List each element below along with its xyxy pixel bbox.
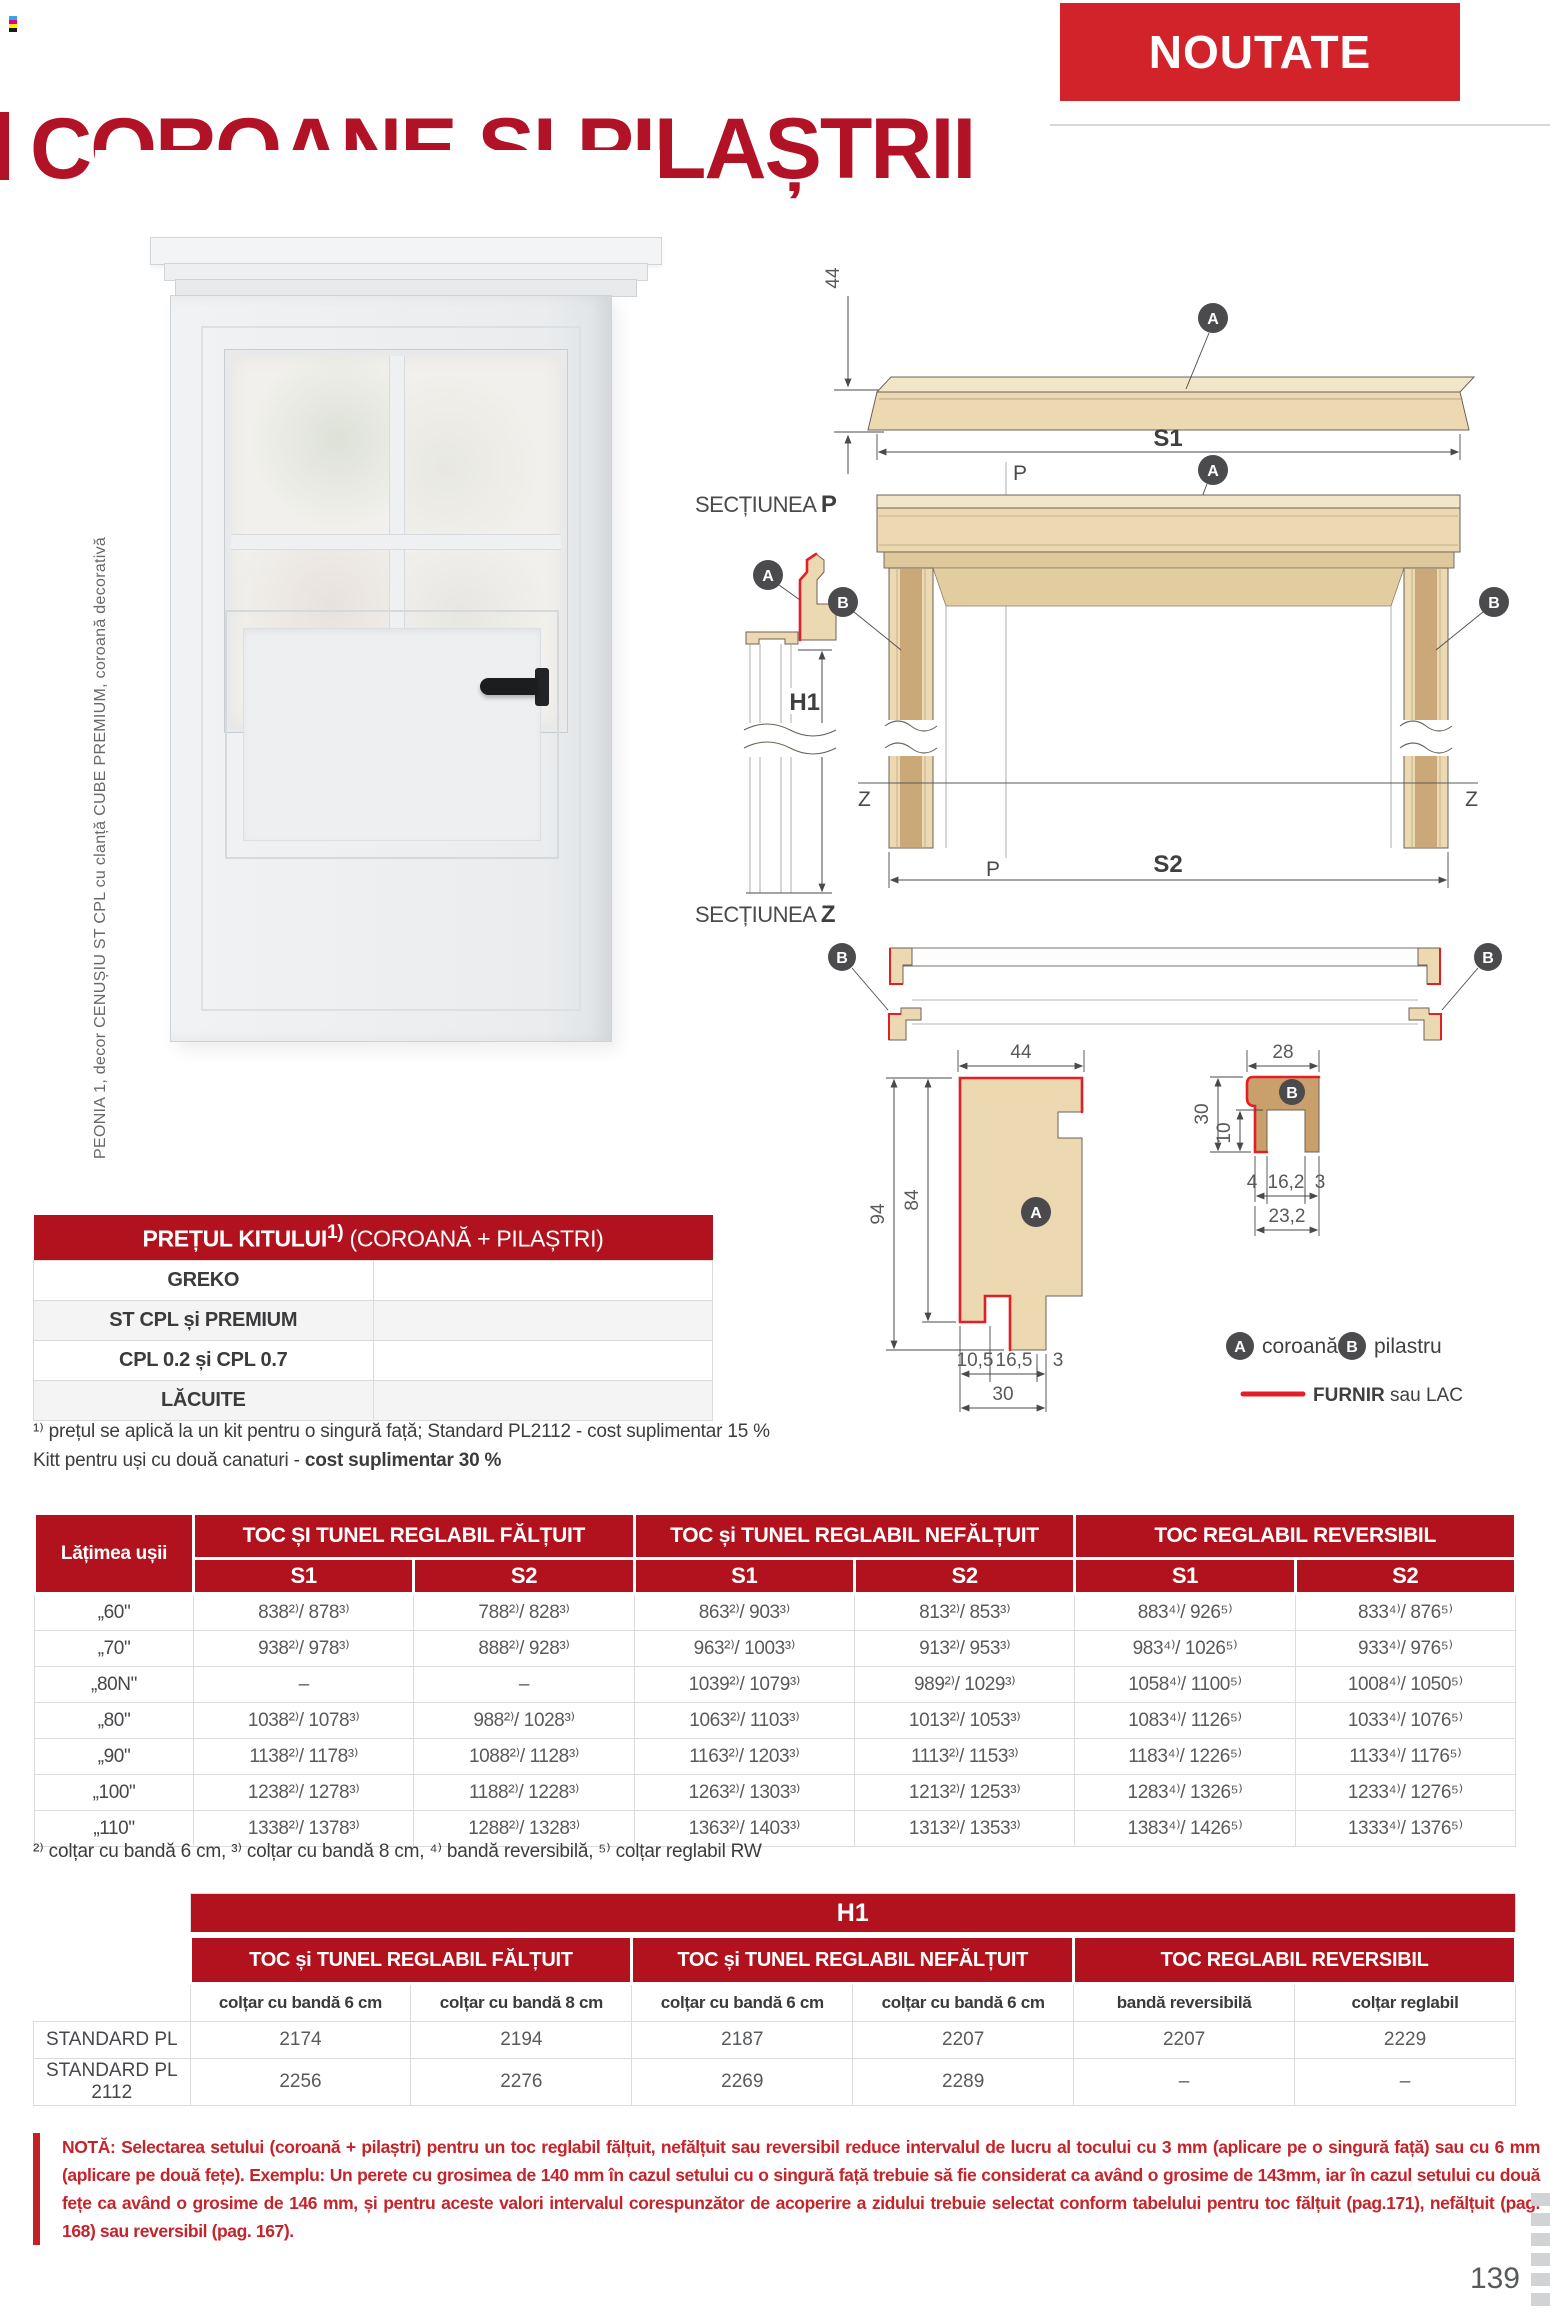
price-cell: 1088²⁾/ 1128³⁾ (414, 1739, 634, 1775)
subheader-s2: S2 (854, 1559, 1074, 1594)
svg-text:10: 10 (1214, 1122, 1235, 1143)
svg-text:B: B (1482, 950, 1494, 967)
price-row-label: ST CPL și PREMIUM (34, 1301, 374, 1341)
h1-column-label: colțar cu bandă 6 cm (190, 1984, 411, 2022)
svg-text:A: A (1030, 1205, 1042, 1222)
price-cell: 863²⁾/ 903³⁾ (634, 1594, 854, 1631)
h1-row-label: STANDARD PL 2112 (34, 2059, 191, 2106)
h1-table-row: STANDARD PL217421942187220722072229 (34, 2022, 1516, 2059)
price-kit-table: PREȚUL KITULUI1) (COROANĂ + PILAȘTRI) GR… (33, 1215, 713, 1421)
svg-text:B: B (1286, 1085, 1298, 1102)
subheader-s2: S2 (414, 1559, 634, 1594)
svg-text:3: 3 (1315, 1172, 1326, 1193)
price-cell: 1058⁴⁾/ 1100⁵⁾ (1075, 1667, 1295, 1703)
price-table-row: CPL 0.2 și CPL 0.7 (34, 1341, 713, 1381)
price-cell: 1083⁴⁾/ 1126⁵⁾ (1075, 1703, 1295, 1739)
frame-price-row: „100"1238²⁾/ 1278³⁾1188²⁾/ 1228³⁾1263²⁾/… (35, 1775, 1516, 1811)
svg-text:4: 4 (1247, 1172, 1258, 1193)
price-cell: 1063²⁾/ 1103³⁾ (634, 1703, 854, 1739)
legend: A coroană B pilastru FURNIR sau LAC (1226, 1332, 1463, 1406)
price-cell: 983⁴⁾/ 1026⁵⁾ (1075, 1631, 1295, 1667)
left-accent-bar (0, 112, 9, 180)
price-cell: 813²⁾/ 853³⁾ (854, 1594, 1074, 1631)
detail-b-pilaster-profile: B 30 10 4 16,2 3 23,2 (1192, 1077, 1325, 1236)
frame-pilasters: B B (828, 568, 1509, 848)
price-cell: 1313²⁾/ 1353³⁾ (854, 1811, 1074, 1847)
glass-muntin (231, 534, 561, 550)
new-badge: NOUTATE (1060, 3, 1460, 101)
h1-cell: 2276 (411, 2059, 632, 2106)
price-cell: – (194, 1667, 414, 1703)
new-badge-label: NOUTATE (1149, 25, 1372, 79)
h1-table-row: STANDARD PL 21122256227622692289–– (34, 2059, 1516, 2106)
svg-text:16,2: 16,2 (1268, 1172, 1305, 1193)
svg-text:3: 3 (1053, 1350, 1064, 1371)
price-row-value (373, 1261, 713, 1301)
group-header-reversibil: TOC REGLABIL REVERSIBIL (1074, 1935, 1516, 1984)
svg-text:B: B (1488, 595, 1500, 612)
svg-text:94: 94 (868, 1203, 889, 1225)
h1-cell: 2289 (853, 2059, 1074, 2106)
svg-text:23,2: 23,2 (1269, 1206, 1306, 1227)
price-cell: 1233⁴⁾/ 1276⁵⁾ (1295, 1775, 1515, 1811)
svg-text:A: A (762, 568, 774, 585)
h1-cell: – (1295, 2059, 1516, 2106)
glass-pane (231, 356, 396, 541)
crown-front-view (877, 495, 1460, 568)
door-width-label: „100" (35, 1775, 194, 1811)
frame-price-row: „70"938²⁾/ 978³⁾888²⁾/ 928³⁾963²⁾/ 1003³… (35, 1631, 1516, 1667)
svg-text:44: 44 (823, 267, 844, 289)
h1-cell: – (1074, 2059, 1295, 2106)
subheader-s1: S1 (1075, 1559, 1295, 1594)
h1-table-blank-cell (34, 1984, 191, 2022)
price-cell: 938²⁾/ 978³⁾ (194, 1631, 414, 1667)
subheader-s2: S2 (1295, 1559, 1515, 1594)
note-text: Selectarea setului (coroană + pilaștri) … (62, 2137, 1540, 2241)
door-width-label: „90" (35, 1739, 194, 1775)
svg-text:H1: H1 (789, 689, 820, 716)
door-width-label: „80" (35, 1703, 194, 1739)
h1-table-blank-cell (34, 1935, 191, 1984)
print-registration-mark (9, 16, 17, 32)
subheader-s1: S1 (194, 1559, 414, 1594)
h1-column-label: bandă reversibilă (1074, 1984, 1295, 2022)
technical-drawing: SECȚIUNEA P A H1 44 (640, 140, 1550, 1460)
price-cell: 963²⁾/ 1003³⁾ (634, 1631, 854, 1667)
h1-table: H1 TOC și TUNEL REGLABIL FĂLȚUIT TOC și … (33, 1893, 1517, 2106)
svg-text:16,5: 16,5 (996, 1350, 1033, 1371)
dimension-44-bar: 44 (823, 267, 884, 474)
price-row-value (373, 1301, 713, 1341)
cross-section-z: B B (828, 943, 1502, 1040)
price-row-label: CPL 0.2 și CPL 0.7 (34, 1341, 374, 1381)
price-cell: 1138²⁾/ 1178³⁾ (194, 1739, 414, 1775)
price-cell: 1183⁴⁾/ 1226⁵⁾ (1075, 1739, 1295, 1775)
group-header-reversibil: TOC REGLABIL REVERSIBIL (1075, 1514, 1516, 1559)
h1-cell: 2229 (1295, 2022, 1516, 2059)
dimension-28-detail: 28 (1247, 1042, 1319, 1072)
svg-text:B: B (836, 950, 848, 967)
main-table-footnote: ²⁾ colțar cu bandă 6 cm, ³⁾ colțar cu ba… (33, 1840, 762, 1863)
catalog-page: COROANE ȘI PILAȘTRII NOUTATE PEONIA 1, d… (0, 0, 1550, 2321)
frame-price-table: Lățimea ușii TOC ȘI TUNEL REGLABIL FĂLȚU… (33, 1512, 1517, 1847)
svg-text:P: P (986, 858, 1000, 881)
price-cell: 988²⁾/ 1028³⁾ (414, 1703, 634, 1739)
h1-table-blank-cell (34, 1894, 191, 1936)
page-edge-marks (1531, 2193, 1550, 2313)
door-width-label: „80N" (35, 1667, 194, 1703)
svg-text:Z: Z (858, 788, 871, 811)
glass-pane (396, 356, 561, 541)
break-wave (744, 723, 836, 757)
group-header-nefaltuit: TOC și TUNEL REGLABIL NEFĂLȚUIT (632, 1935, 1074, 1984)
door-width-label: „60" (35, 1594, 194, 1631)
price-cell: 833⁴⁾/ 876⁵⁾ (1295, 1594, 1515, 1631)
note-prefix: NOTĂ: (62, 2137, 115, 2157)
price-cell: 1133⁴⁾/ 1176⁵⁾ (1295, 1739, 1515, 1775)
crown-side-profile: A (753, 554, 836, 640)
section-p-label: SECȚIUNEA P (695, 491, 837, 518)
frame-price-row: „90"1138²⁾/ 1178³⁾1088²⁾/ 1128³⁾1163²⁾/ … (35, 1739, 1516, 1775)
svg-text:S1: S1 (1153, 425, 1182, 452)
h1-column-label: colțar cu bandă 8 cm (411, 1984, 632, 2022)
dimension-s2: S2 (889, 851, 1448, 888)
section-z-label: SECȚIUNEA Z (695, 901, 835, 928)
svg-text:44: 44 (1010, 1042, 1032, 1063)
price-row-value (373, 1381, 713, 1421)
header-divider (1050, 124, 1550, 126)
h1-cell: 2187 (632, 2022, 853, 2059)
price-cell: 1283⁴⁾/ 1326⁵⁾ (1075, 1775, 1295, 1811)
price-cell: 1238²⁾/ 1278³⁾ (194, 1775, 414, 1811)
price-footnote-1: ¹⁾ prețul se aplică la un kit pentru o s… (33, 1420, 770, 1443)
price-row-label: LĂCUITE (34, 1381, 374, 1421)
h1-cell: 2269 (632, 2059, 853, 2106)
price-cell: 1038²⁾/ 1078³⁾ (194, 1703, 414, 1739)
note-block: NOTĂ: Selectarea setului (coroană + pila… (33, 2133, 1540, 2245)
detail-a-crown-profile: A 94 84 10,5 16,5 3 30 (868, 1078, 1082, 1412)
price-row-label: GREKO (34, 1261, 374, 1301)
dimension-44-detail: 44 (958, 1042, 1084, 1072)
group-header-faltuit: TOC și TUNEL REGLABIL FĂLȚUIT (190, 1935, 632, 1984)
frame-price-row: „60"838²⁾/ 878³⁾788²⁾/ 828³⁾863²⁾/ 903³⁾… (35, 1594, 1516, 1631)
price-footnote-2: Kitt pentru uși cu două canaturi - cost … (33, 1450, 501, 1472)
price-cell: 1213²⁾/ 1253³⁾ (854, 1775, 1074, 1811)
price-cell: 1039²⁾/ 1079³⁾ (634, 1667, 854, 1703)
legend-furnir-label: FURNIR sau LAC (1313, 1385, 1463, 1406)
svg-text:84: 84 (902, 1189, 923, 1211)
price-cell: 1333⁴⁾/ 1376⁵⁾ (1295, 1811, 1515, 1847)
page-number: 139 (1440, 2262, 1520, 2296)
legend-a-label: coroană (1262, 1335, 1338, 1358)
door-caption: PEONIA 1, decor CENUȘIU ST CPL cu clanță… (92, 569, 114, 1159)
svg-text:B: B (837, 595, 849, 612)
door-lower-panel-inner (243, 628, 541, 841)
svg-text:30: 30 (1192, 1103, 1213, 1124)
price-cell: 788²⁾/ 828³⁾ (414, 1594, 634, 1631)
h1-cell: 2207 (1074, 2022, 1295, 2059)
h1-cell: 2194 (411, 2022, 632, 2059)
column-header-door-width: Lățimea ușii (35, 1514, 194, 1594)
price-table-row: LĂCUITE (34, 1381, 713, 1421)
price-cell: 1033⁴⁾/ 1076⁵⁾ (1295, 1703, 1515, 1739)
price-cell: 838²⁾/ 878³⁾ (194, 1594, 414, 1631)
h1-cell: 2207 (853, 2022, 1074, 2059)
h1-column-label: colțar reglabil (1295, 1984, 1516, 2022)
price-cell: 1013²⁾/ 1053³⁾ (854, 1703, 1074, 1739)
price-table-row: GREKO (34, 1261, 713, 1301)
h1-cell: 2256 (190, 2059, 411, 2106)
price-cell: 883⁴⁾/ 926⁵⁾ (1075, 1594, 1295, 1631)
price-cell: 989²⁾/ 1029³⁾ (854, 1667, 1074, 1703)
price-cell: 888²⁾/ 928³⁾ (414, 1631, 634, 1667)
price-table-row: ST CPL și PREMIUM (34, 1301, 713, 1341)
door-width-label: „70" (35, 1631, 194, 1667)
svg-text:30: 30 (992, 1384, 1013, 1405)
h1-table-title: H1 (190, 1894, 1516, 1936)
svg-text:10,5: 10,5 (957, 1350, 994, 1371)
h1-row-label: STANDARD PL (34, 2022, 191, 2059)
door-lower-panel (225, 610, 559, 859)
svg-text:A: A (1207, 311, 1219, 328)
frame-price-row: „80N"––1039²⁾/ 1079³⁾989²⁾/ 1029³⁾1058⁴⁾… (35, 1667, 1516, 1703)
svg-text:A: A (1234, 1339, 1246, 1356)
price-cell: 933⁴⁾/ 976⁵⁾ (1295, 1631, 1515, 1667)
svg-text:28: 28 (1272, 1042, 1293, 1063)
price-cell: 1008⁴⁾/ 1050⁵⁾ (1295, 1667, 1515, 1703)
dimension-h1: H1 (786, 650, 832, 893)
price-cell: 1113²⁾/ 1153³⁾ (854, 1739, 1074, 1775)
crown-bar-3d: A (868, 303, 1474, 430)
price-cell: 1263²⁾/ 1303³⁾ (634, 1775, 854, 1811)
h1-column-label: colțar cu bandă 6 cm (853, 1984, 1074, 2022)
price-cell: – (414, 1667, 634, 1703)
group-header-nefaltuit: TOC și TUNEL REGLABIL NEFĂLȚUIT (634, 1514, 1075, 1559)
door-photo (95, 150, 660, 1065)
svg-text:B: B (1346, 1339, 1358, 1356)
h1-cell: 2174 (190, 2022, 411, 2059)
svg-text:Z: Z (1465, 788, 1478, 811)
price-table-header: PREȚUL KITULUI1) (COROANĂ + PILAȘTRI) (34, 1215, 713, 1261)
door-crown-top (150, 237, 662, 265)
svg-text:P: P (1013, 462, 1027, 485)
price-row-value (373, 1341, 713, 1381)
legend-b-label: pilastru (1374, 1335, 1442, 1358)
svg-text:A: A (1207, 463, 1219, 480)
price-cell: 1383⁴⁾/ 1426⁵⁾ (1075, 1811, 1295, 1847)
svg-text:S2: S2 (1153, 851, 1182, 878)
subheader-s1: S1 (634, 1559, 854, 1594)
section-line-z: Z Z (858, 783, 1478, 811)
price-cell: 1163²⁾/ 1203³⁾ (634, 1739, 854, 1775)
group-header-faltuit: TOC ȘI TUNEL REGLABIL FĂLȚUIT (194, 1514, 635, 1559)
tunnel-profile (746, 632, 798, 893)
door-handle-icon (480, 678, 538, 695)
price-cell: 913²⁾/ 953³⁾ (854, 1631, 1074, 1667)
price-cell: 1188²⁾/ 1228³⁾ (414, 1775, 634, 1811)
frame-price-row: „80"1038²⁾/ 1078³⁾988²⁾/ 1028³⁾1063²⁾/ 1… (35, 1703, 1516, 1739)
h1-column-label: colțar cu bandă 6 cm (632, 1984, 853, 2022)
